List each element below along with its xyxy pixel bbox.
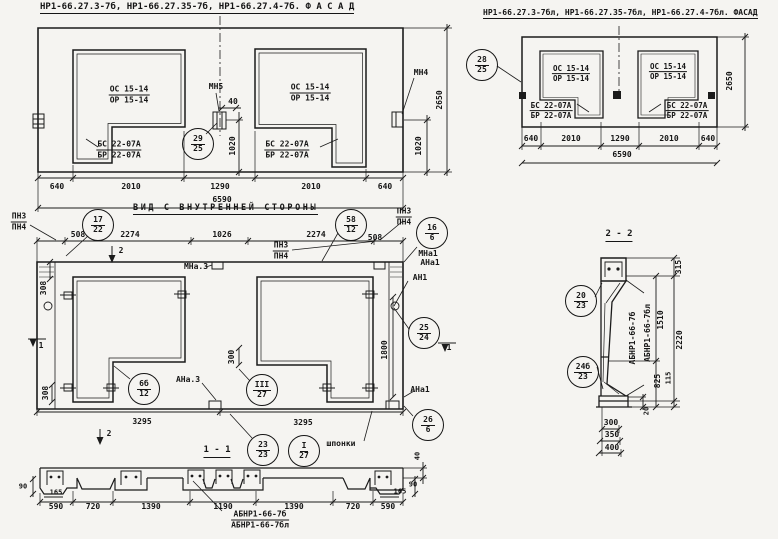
- position-balloon-16-6: 166: [416, 217, 448, 249]
- keys-note: шпонки: [327, 440, 356, 448]
- dim-508: 508: [368, 234, 382, 242]
- product-mark: АБНР1-66-7бл: [644, 304, 652, 362]
- dim-315: 315: [675, 260, 683, 274]
- dim-2010: 2010: [121, 183, 140, 191]
- dim-640: 640: [50, 183, 64, 191]
- window-mark: ОС 15-14 ОР 15-14: [649, 62, 687, 82]
- position-balloon-26-6: 266: [412, 409, 444, 441]
- anchor-label-mn4: МН4: [414, 69, 428, 77]
- internal-hinge-squares: [60, 291, 378, 391]
- section-mark-lines: [28, 246, 456, 442]
- dim-590: 590: [381, 503, 395, 511]
- dim-720: 720: [346, 503, 360, 511]
- dim-90: 90: [19, 484, 27, 491]
- dim-300: 300: [228, 350, 236, 364]
- internal-edge-fittings: [209, 262, 399, 409]
- drawing-sheet: НР1-66.27.3-7б, НР1-66.27.35-7б, НР1-66.…: [0, 0, 778, 539]
- anchor-label-mna1: МНа1: [418, 250, 437, 258]
- dim-total-6590: 6590: [612, 151, 631, 159]
- dim-90: 90: [409, 482, 417, 489]
- dim-165: 165: [394, 489, 407, 496]
- dim-2650: 2650: [726, 71, 734, 90]
- dim-590: 590: [49, 503, 63, 511]
- anchor-label-an1: АН1: [413, 274, 427, 282]
- position-balloon-58-12: 5812: [335, 209, 367, 241]
- dim-300: 300: [604, 419, 618, 427]
- anchor-label-ana1: АНа1: [410, 386, 429, 394]
- window-frame-mark: ОР 15-14: [109, 96, 150, 106]
- position-balloon-66-12: 6б12: [128, 373, 160, 405]
- dim-2010: 2010: [659, 135, 678, 143]
- dim-165: 165: [50, 490, 63, 497]
- internal-openings: [73, 277, 373, 402]
- dim-2010: 2010: [301, 183, 320, 191]
- position-balloon-III-27: III27: [246, 374, 278, 406]
- dim-40: 40: [415, 452, 422, 460]
- section-2-2-title: 2 - 2: [605, 230, 632, 242]
- dim-1510: 1510: [657, 310, 665, 329]
- dim-1190: 1190: [213, 503, 232, 511]
- window-mark: ОС 15-14 ОР 15-14: [552, 64, 590, 84]
- dim-2274: 2274: [306, 231, 325, 239]
- sill-block-mark: БС 22-07А БР 22-07А: [666, 101, 709, 121]
- dim-2274: 2274: [120, 231, 139, 239]
- s22-body-inner: [603, 283, 620, 394]
- dim-20: 20: [644, 407, 651, 415]
- dim-308: 308: [42, 386, 50, 400]
- position-balloon-17-22: 1722: [82, 209, 114, 241]
- internal-leaders: [30, 221, 417, 441]
- internal-dim-lines: [37, 241, 403, 412]
- dim-825: 825: [654, 374, 662, 388]
- dim-400: 400: [605, 444, 619, 452]
- dim-3295: 3295: [132, 418, 151, 426]
- internal-rib-lines: [55, 262, 389, 409]
- panel-mark-pn: ПН3 ПН4: [273, 241, 289, 262]
- internal-panel-outline: [37, 262, 403, 409]
- panel-mark-pn: ПН3 ПН4: [11, 212, 27, 233]
- sill-block-mark: БС 22-07А БР 22-07А: [96, 140, 141, 161]
- s11-profile: [40, 468, 403, 494]
- position-balloon-246-23: 24б23: [567, 356, 599, 388]
- dim-2220: 2220: [676, 330, 684, 349]
- dim-40: 40: [228, 98, 238, 106]
- position-balloon-23-23: 2323: [247, 434, 279, 466]
- product-mark: АБНР1-66-7б АБНР1-66-7бл: [231, 510, 289, 531]
- facade1-title: НР1-66.27.3-7б, НР1-66.27.35-7б, НР1-66.…: [40, 3, 354, 14]
- window-sash-mark: ОС 15-14: [109, 85, 150, 96]
- position-balloon-25-24: 2524: [408, 317, 440, 349]
- internal-view-title: ВИД С ВНУТРЕННЕЙ СТОРОНЫ: [133, 204, 318, 215]
- sill-block-mark: БС 22-07А БР 22-07А: [264, 140, 309, 161]
- section-mark-2: 2: [107, 430, 112, 438]
- position-balloon-20-23: 2023: [565, 285, 597, 317]
- anchor-label-ana1: АНа1: [420, 259, 439, 267]
- section-mark-2: 2: [119, 247, 124, 255]
- dim-1800: 1800: [381, 340, 389, 359]
- s22-body: [601, 281, 626, 396]
- dim-1026: 1026: [212, 231, 231, 239]
- dim-115: 115: [666, 372, 673, 385]
- facade2-title: НР1-66.27.3-7бл, НР1-66.27.35-7бл, НР1-6…: [483, 9, 758, 19]
- dim-1020: 1020: [229, 136, 237, 155]
- dim-350: 350: [605, 431, 619, 439]
- position-balloon-28-25: 2825: [466, 49, 498, 81]
- section-mark-1: 1: [39, 342, 44, 350]
- dim-1290: 1290: [610, 135, 629, 143]
- position-balloon-29-25: 2925: [182, 128, 214, 160]
- product-mark: АБНР1-66-7б: [629, 312, 637, 365]
- anchor-label-mna3: МНа.3: [184, 263, 208, 271]
- window-mark: ОС 15-14 ОР 15-14: [109, 85, 150, 106]
- dim-1020: 1020: [415, 136, 423, 155]
- window-mark: ОС 15-14 ОР 15-14: [290, 83, 331, 104]
- dim-total-6590: 6590: [212, 196, 231, 204]
- panel-mark-pn: ПН3 ПН4: [396, 207, 412, 228]
- dim-640: 640: [701, 135, 715, 143]
- internal-ext-lines: [37, 237, 403, 416]
- dim-1390: 1390: [141, 503, 160, 511]
- dim-640: 640: [378, 183, 392, 191]
- facade1-dim-lines: [38, 24, 447, 208]
- dim-2650: 2650: [436, 90, 444, 109]
- anchor-label-ana3: АНа.3: [176, 376, 200, 384]
- internal-openings-inner: [77, 281, 369, 398]
- dim-640: 640: [524, 135, 538, 143]
- dim-720: 720: [86, 503, 100, 511]
- dim-2010: 2010: [561, 135, 580, 143]
- s22-ext-lines: [602, 258, 680, 457]
- s22-base: [596, 396, 632, 407]
- position-balloon-I-27: I27: [288, 435, 320, 467]
- dim-3295: 3295: [293, 419, 312, 427]
- section-mark-1: 1: [447, 344, 452, 352]
- internal-hole-left: [44, 302, 52, 310]
- section-1-1-title: 1 - 1: [203, 446, 230, 458]
- sill-block-mark: БС 22-07А БР 22-07А: [530, 101, 573, 121]
- dim-308: 308: [40, 281, 48, 295]
- anchor-label-mn5: МН5: [209, 83, 223, 91]
- dim-1290: 1290: [210, 183, 229, 191]
- facade1-anchors: [33, 112, 403, 129]
